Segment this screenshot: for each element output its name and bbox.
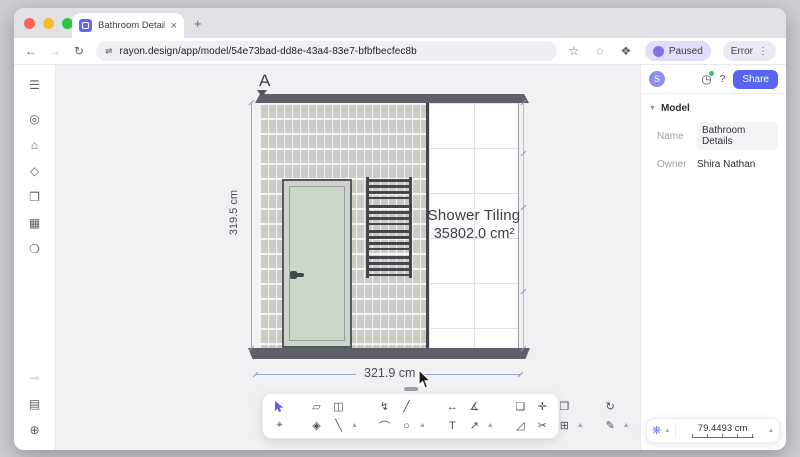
angular-dimension-tool[interactable]: ∡ (464, 397, 485, 416)
circle-tool[interactable]: ○ (396, 416, 417, 435)
tool-group-chevron-icon[interactable]: ▲ (487, 422, 494, 429)
door-handle (291, 273, 304, 277)
field-label: Name (657, 131, 691, 142)
scale-ruler (692, 434, 754, 438)
history-icon[interactable]: ◷ (701, 72, 711, 86)
library-icon[interactable]: ▤ (22, 392, 48, 416)
drawing-toolbar: ⌖▱◈◫╲▲↯⌒╱○▲↔T∡↗▲❏◿✛✂❐⊞▲↻✎▲❍⊟▲ (262, 393, 559, 439)
chevron-down-icon[interactable]: ▼ (649, 105, 656, 112)
mouse-cursor (418, 369, 433, 395)
tool-group-chevron-icon[interactable]: ▲ (351, 422, 358, 429)
slab-tool[interactable]: ▱ (306, 397, 327, 416)
rotate-tool[interactable]: ↻ (600, 397, 621, 416)
materials-icon[interactable]: ◇ (22, 159, 48, 183)
snap-settings-icon[interactable]: ❋ (652, 424, 661, 437)
browser-toolbar: ← → ↻ ⇌ rayon.design/app/model/54e73bad-… (14, 38, 786, 65)
new-tab-button[interactable]: + (194, 16, 202, 31)
scale-chevron-icon[interactable]: ▲ (768, 428, 774, 434)
door-panel (289, 186, 345, 341)
panel-header: S ◷ ? Share (641, 65, 786, 94)
help-icon[interactable]: ⊕ (22, 418, 48, 442)
line-tool[interactable]: ╱ (396, 397, 417, 416)
move-tool[interactable]: ✛ (532, 397, 553, 416)
right-panel: S ◷ ? Share ▼ Model NameBathroom Details… (640, 65, 786, 450)
offset-tool[interactable]: ❐ (554, 397, 575, 416)
toolbar-drag-handle[interactable] (404, 387, 418, 391)
field-row-owner: OwnerShira Nathan (641, 153, 786, 176)
width-dimension-label[interactable]: 321.9 cm (356, 366, 423, 380)
window-controls (24, 18, 73, 29)
site-settings-icon[interactable]: ⇌ (105, 46, 113, 57)
comments-icon[interactable]: ❍ (22, 237, 48, 261)
model-section-header[interactable]: ▼ Model (641, 94, 786, 119)
profile-avatar (653, 46, 664, 57)
polyline-tool[interactable]: ↯ (374, 397, 395, 416)
paused-label: Paused (669, 46, 703, 57)
forward-icon[interactable]: → (48, 44, 62, 58)
node-select-tool[interactable]: ⌖ (269, 416, 290, 435)
close-window-button[interactable] (24, 18, 35, 29)
towel-radiator[interactable] (366, 177, 412, 278)
field-label: Owner (657, 159, 691, 170)
wall-line-tool[interactable]: ╲ (328, 416, 349, 435)
minimize-window-button[interactable] (43, 18, 54, 29)
tab-close-icon[interactable]: × (171, 20, 177, 32)
rayon-app: ☰◎⌂◇❐▦❍⊸▤⊕ A 319.5 cm (14, 65, 786, 450)
address-bar[interactable]: ⇌ rayon.design/app/model/54e73bad-dd8e-4… (96, 41, 557, 61)
help-icon[interactable]: ? (720, 74, 726, 85)
door[interactable] (282, 179, 352, 348)
lens-icon[interactable]: ◌ (593, 44, 607, 58)
rayon-favicon (79, 19, 92, 32)
select-tool[interactable] (269, 397, 290, 416)
area-title: Shower Tiling (418, 207, 530, 224)
scale-value: 79.4493 cm (698, 423, 748, 434)
erase-tool[interactable]: ✎ (600, 416, 621, 435)
drawing-canvas[interactable]: A 319.5 cm (56, 65, 640, 450)
leader-tool[interactable]: ↗ (464, 416, 485, 435)
extensions-icon[interactable]: ❖ (619, 44, 633, 58)
back-icon[interactable]: ← (24, 44, 38, 58)
snap-chevron-icon[interactable]: ▲ (664, 428, 670, 434)
section-marker: A (259, 71, 270, 91)
left-sidebar: ☰◎⌂◇❐▦❍⊸▤⊕ (14, 65, 56, 450)
arc-tool[interactable]: ⌒ (374, 416, 395, 435)
copy-tool[interactable]: ❏ (510, 397, 531, 416)
field-row-name: NameBathroom Details (641, 119, 786, 153)
plugins-icon[interactable]: ⊸ (22, 366, 48, 390)
field-value-name[interactable]: Bathroom Details (697, 122, 778, 150)
url-text: rayon.design/app/model/54e73bad-dd8e-43a… (120, 46, 417, 57)
text-tool[interactable]: T (442, 416, 463, 435)
profile-paused-badge[interactable]: Paused (645, 41, 711, 61)
browser-window: Bathroom Details | Rayon × + ← → ↻ ⇌ ray… (14, 8, 786, 450)
door-tool[interactable]: ◫ (328, 397, 349, 416)
hatch-tool[interactable]: ◈ (306, 416, 327, 435)
user-avatar[interactable]: S (649, 71, 665, 87)
share-button[interactable]: Share (733, 70, 778, 89)
scale-value-box[interactable]: 79.4493 cm (675, 423, 765, 438)
tab-title: Bathroom Details | Rayon (98, 20, 165, 31)
error-badge[interactable]: Error ⋮ (723, 41, 776, 61)
model-cube-icon[interactable]: ⌂ (22, 133, 48, 157)
menu-icon[interactable]: ☰ (22, 73, 48, 97)
tool-group-chevron-icon[interactable]: ▲ (419, 422, 426, 429)
height-dimension-line[interactable] (251, 103, 252, 348)
ceiling-beam[interactable] (255, 94, 529, 103)
section-title: Model (661, 103, 690, 114)
height-dimension-label[interactable]: 319.5 cm (228, 185, 240, 240)
scene-icon[interactable]: ◎ (22, 107, 48, 131)
linear-dimension-tool[interactable]: ↔ (442, 397, 463, 416)
tables-icon[interactable]: ▦ (22, 211, 48, 235)
pages-icon[interactable]: ❐ (22, 185, 48, 209)
browser-tab[interactable]: Bathroom Details | Rayon × (72, 13, 184, 38)
error-label: Error (731, 46, 753, 57)
reload-icon[interactable]: ↻ (72, 44, 86, 58)
scale-widget: ❋ ▲ 79.4493 cm ▲ (646, 418, 780, 443)
bookmark-icon[interactable]: ☆ (567, 44, 581, 58)
stretch-tool[interactable]: ◿ (510, 416, 531, 435)
field-value-owner: Shira Nathan (697, 156, 778, 173)
kebab-menu-icon[interactable]: ⋮ (758, 46, 768, 57)
shower-tiling-annotation[interactable]: Shower Tiling 35802.0 cm² (418, 207, 530, 242)
tab-strip: Bathroom Details | Rayon × + (14, 8, 786, 38)
area-value: 35802.0 cm² (418, 226, 530, 242)
tool-group-chevron-icon[interactable]: ▲ (577, 422, 584, 429)
array-tool[interactable]: ⊞ (554, 416, 575, 435)
floor-beam[interactable] (248, 348, 530, 359)
trim-tool[interactable]: ✂ (532, 416, 553, 435)
tool-group-chevron-icon[interactable]: ▲ (623, 422, 630, 429)
